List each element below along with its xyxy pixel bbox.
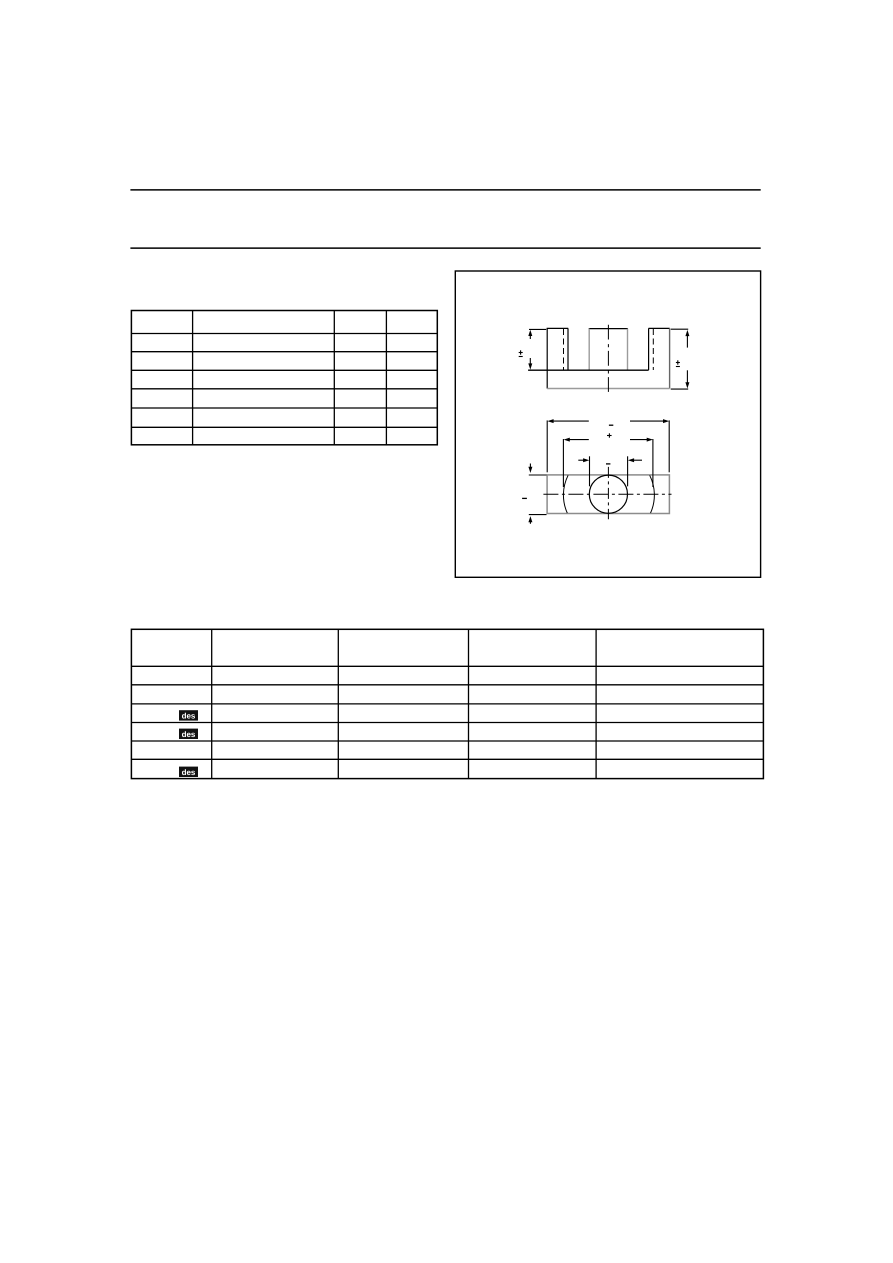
svg-text:des: des — [182, 711, 196, 720]
svg-text:des: des — [182, 730, 196, 739]
svg-text:des: des — [182, 768, 196, 777]
